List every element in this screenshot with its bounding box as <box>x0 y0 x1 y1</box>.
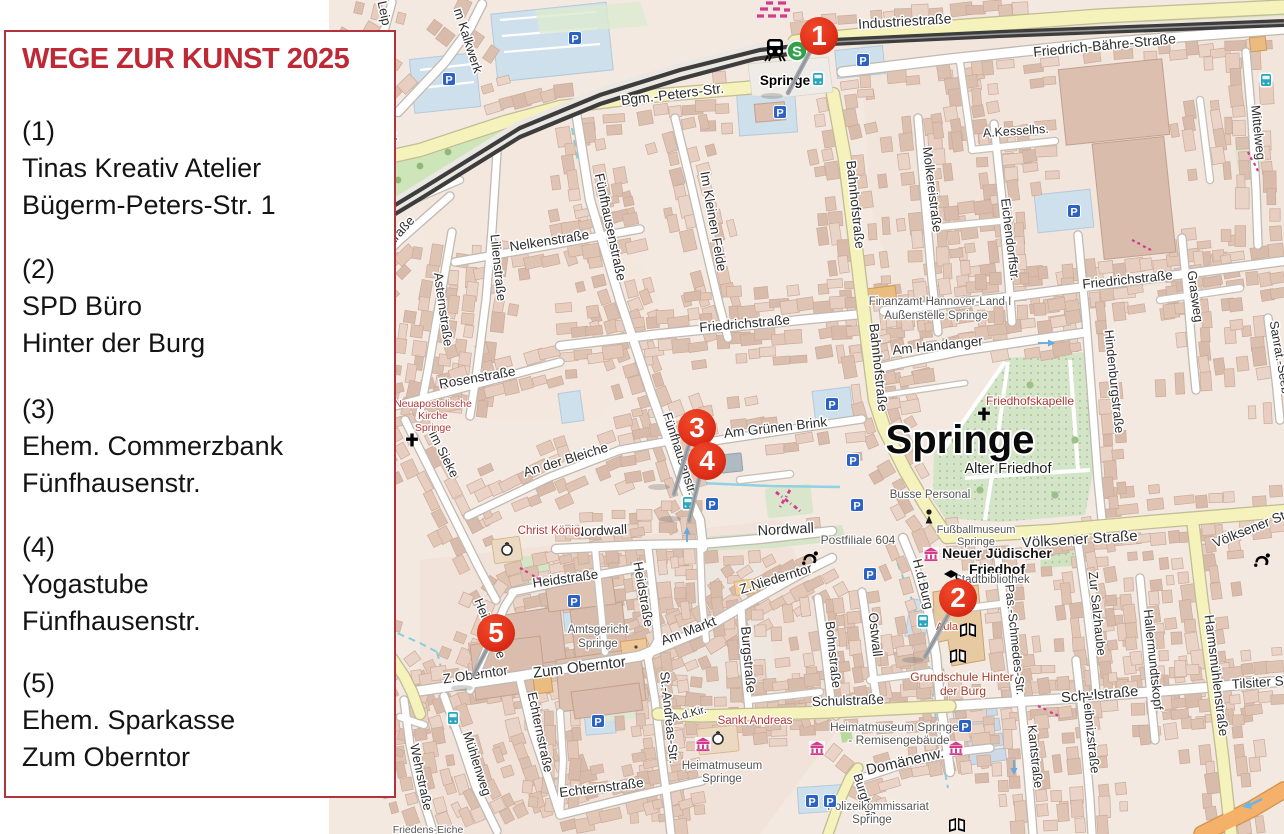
svg-text:Postfiliale 604: Postfiliale 604 <box>821 533 896 547</box>
svg-text:Springe: Springe <box>702 773 742 785</box>
svg-text:Sankt Andreas: Sankt Andreas <box>718 715 793 727</box>
svg-text:Alter Friedhof: Alter Friedhof <box>964 461 1052 477</box>
svg-text:Springe: Springe <box>886 418 1035 462</box>
svg-text:Friedhofskapelle: Friedhofskapelle <box>986 394 1074 408</box>
svg-text:Kirche: Kirche <box>418 410 448 422</box>
svg-text:der Burg: der Burg <box>940 684 986 698</box>
svg-text:Nordwall: Nordwall <box>757 521 814 540</box>
svg-text:Springe: Springe <box>415 422 451 434</box>
svg-text:Busse Personal: Busse Personal <box>890 489 971 501</box>
svg-text:4: 4 <box>699 445 715 476</box>
svg-text:Fußballmuseum: Fußballmuseum <box>937 524 1016 536</box>
svg-text:Schulstraße: Schulstraße <box>812 692 885 710</box>
svg-text:Nordwall: Nordwall <box>574 522 627 540</box>
svg-text:Grundschule Hinter: Grundschule Hinter <box>910 670 1013 684</box>
svg-text:Amtsgericht: Amtsgericht <box>568 624 630 636</box>
svg-text:Heimatmuseum Springe -: Heimatmuseum Springe - <box>830 720 966 734</box>
svg-text:Finanzamt Hannover-Land I: Finanzamt Hannover-Land I <box>869 296 1012 308</box>
svg-text:Außenstelle Springe: Außenstelle Springe <box>884 310 988 322</box>
svg-text:Polizeikommissariat: Polizeikommissariat <box>827 801 929 813</box>
svg-text:Springe: Springe <box>760 73 811 88</box>
svg-text:- Remisengebäude: - Remisengebäude <box>848 733 950 747</box>
svg-text:Friedens-Eiche: Friedens-Eiche <box>393 824 464 834</box>
svg-text:Springe: Springe <box>957 536 995 548</box>
svg-text:3: 3 <box>689 412 705 443</box>
svg-text:Springe: Springe <box>852 814 892 826</box>
svg-text:Neuapostolische: Neuapostolische <box>394 398 472 410</box>
svg-text:1: 1 <box>811 20 827 51</box>
svg-text:5: 5 <box>488 617 504 648</box>
svg-text:Springe: Springe <box>578 638 618 650</box>
svg-text:Christ König: Christ König <box>518 525 581 537</box>
svg-text:2: 2 <box>950 582 966 613</box>
svg-text:Heimatmuseum: Heimatmuseum <box>682 760 763 772</box>
